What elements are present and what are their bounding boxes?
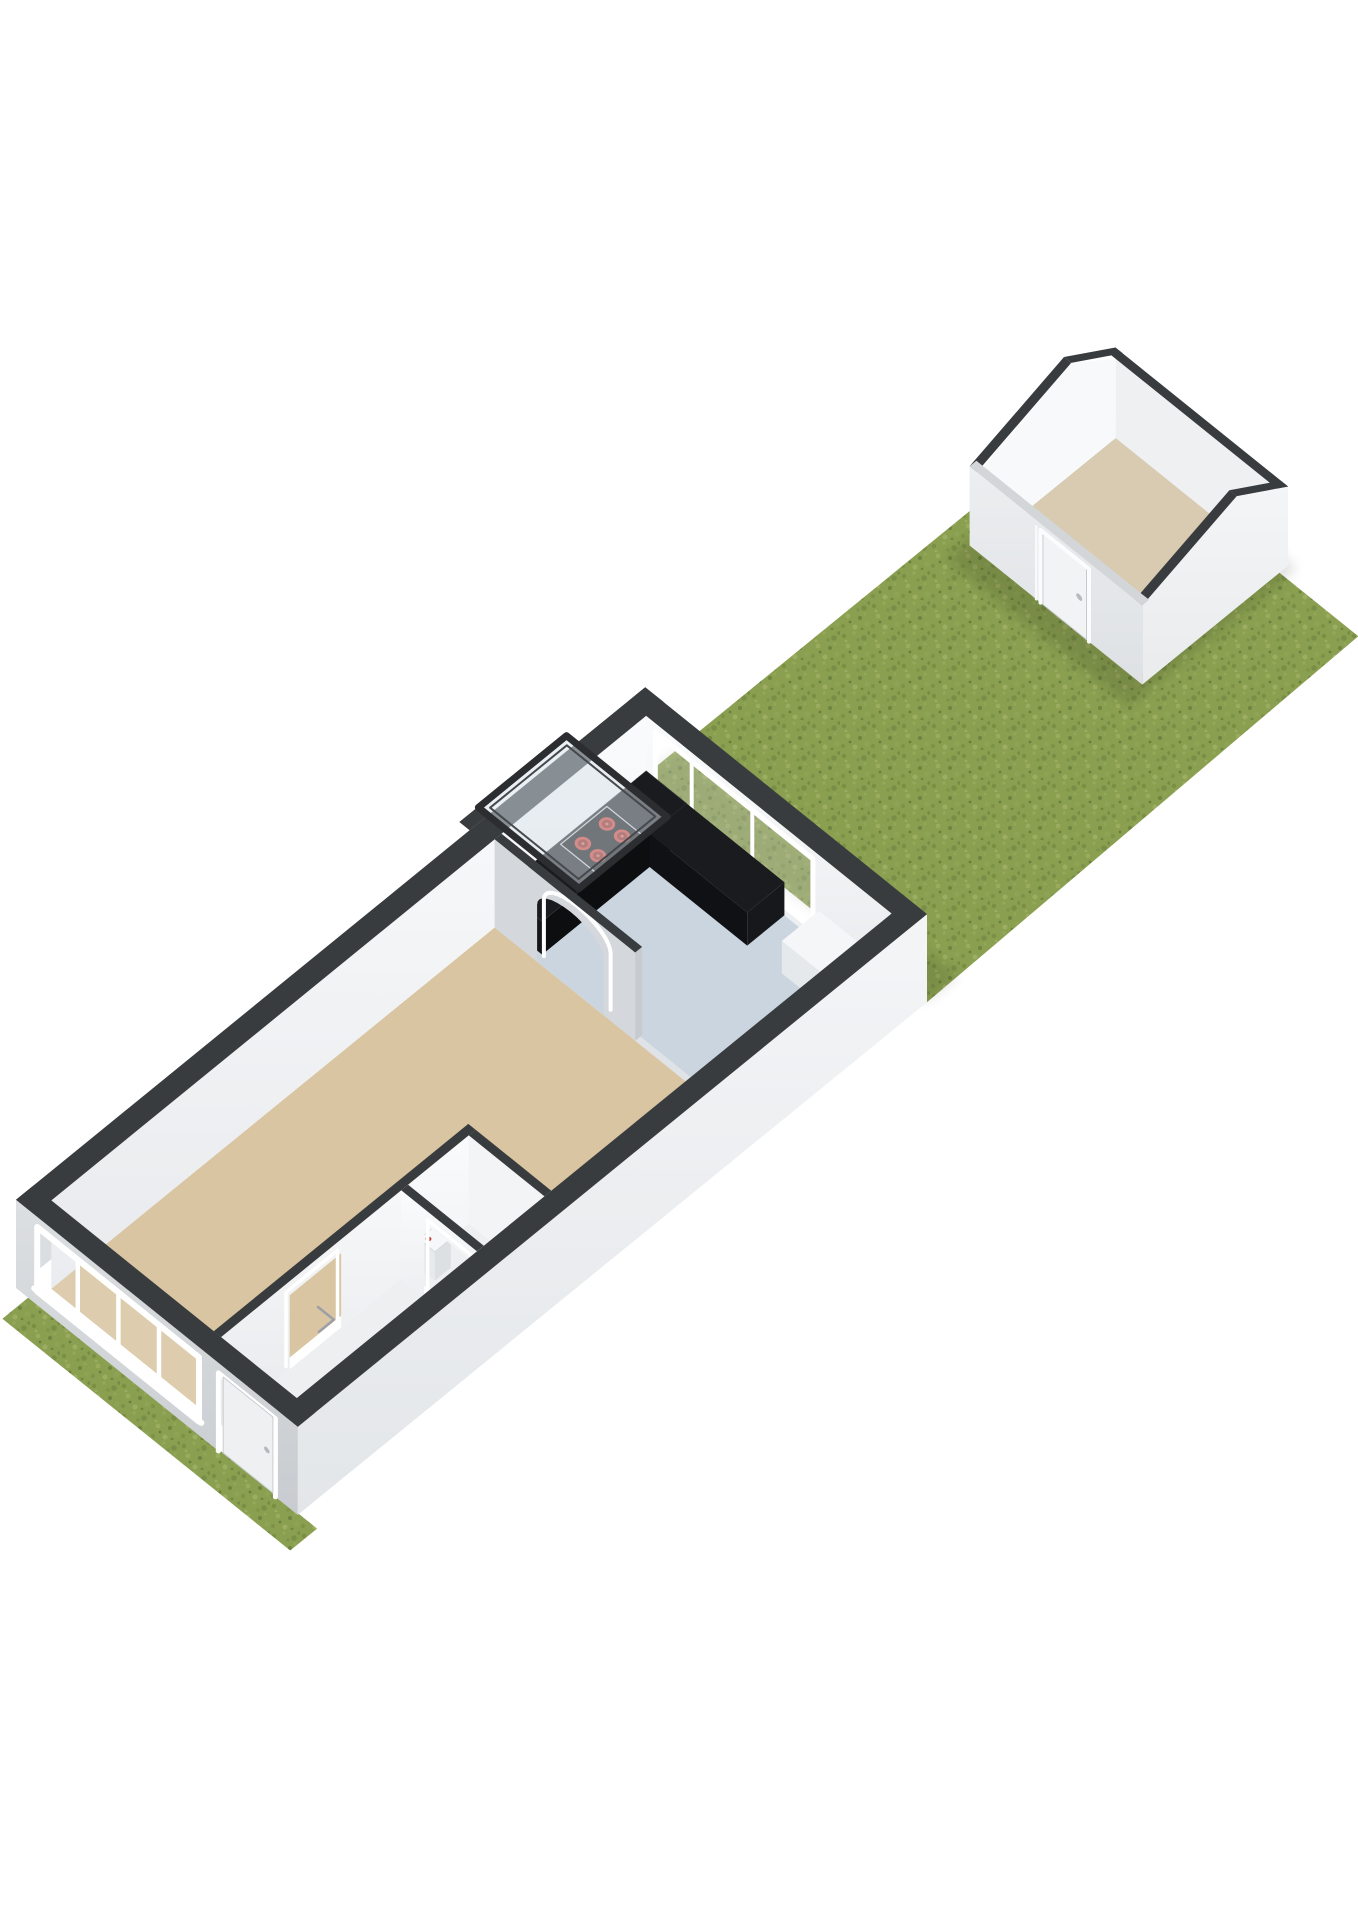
- floorplan-page: [0, 0, 1358, 1920]
- floorplan-3d-view: [0, 0, 1358, 1920]
- arch-wall-end: [635, 947, 642, 1041]
